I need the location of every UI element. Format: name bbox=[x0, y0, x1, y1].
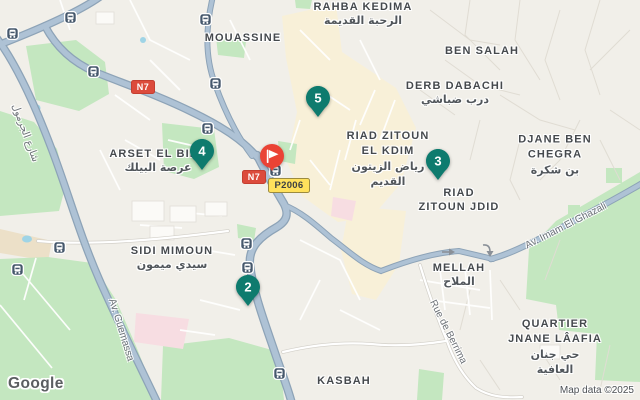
transit-station-icon[interactable] bbox=[11, 263, 24, 276]
svg-text:4: 4 bbox=[198, 144, 206, 159]
route-badge-p2006: P2006 bbox=[268, 178, 310, 193]
area-label-kasbah[interactable]: KASBAH bbox=[317, 374, 371, 388]
transit-station-icon[interactable] bbox=[201, 122, 214, 135]
area-label-derb-dabachi[interactable]: DERB DABACHI درب ضباشي bbox=[406, 79, 504, 107]
route-badge-n7: N7 bbox=[131, 80, 155, 94]
transit-station-icon[interactable] bbox=[199, 13, 212, 26]
transit-station-icon[interactable] bbox=[87, 65, 100, 78]
transit-station-icon[interactable] bbox=[273, 367, 286, 380]
transit-station-icon[interactable] bbox=[209, 77, 222, 90]
area-label-djane-ben-chegra[interactable]: DJANE BEN CHEGRA بن شكرة bbox=[518, 133, 591, 178]
map-marker-4[interactable]: 4 bbox=[190, 139, 214, 170]
map-marker-5[interactable]: 5 bbox=[306, 86, 330, 117]
map-marker-3[interactable]: 3 bbox=[426, 149, 450, 180]
destination-flag-icon[interactable] bbox=[258, 143, 286, 178]
area-label-mouassine[interactable]: MOUASSINE bbox=[205, 31, 282, 45]
transit-station-icon[interactable] bbox=[6, 27, 19, 40]
svg-text:2: 2 bbox=[244, 280, 251, 295]
transit-station-icon[interactable] bbox=[240, 237, 253, 250]
svg-text:5: 5 bbox=[314, 91, 321, 106]
map-attribution: Map data ©2025 bbox=[560, 385, 634, 396]
transit-station-icon[interactable] bbox=[53, 241, 66, 254]
area-label-rahba-kedima[interactable]: RAHBA KEDIMA الرحبة القديمة bbox=[314, 0, 413, 28]
area-label-ben-salah[interactable]: BEN SALAH bbox=[445, 44, 519, 58]
svg-text:3: 3 bbox=[434, 154, 441, 169]
area-label-riad-zitoun-el-kdim[interactable]: RIAD ZITOUN EL KDIM رياض الزيتون القديم bbox=[347, 129, 430, 189]
area-label-sidi-mimoun[interactable]: SIDI MIMOUN سيدي ميمون bbox=[131, 244, 213, 272]
area-label-mellah[interactable]: MELLAH الملاح bbox=[433, 261, 485, 289]
transit-station-icon[interactable] bbox=[241, 261, 254, 274]
transit-station-icon[interactable] bbox=[64, 11, 77, 24]
area-label-riad-zitoun-jdid[interactable]: RIAD ZITOUN JDID bbox=[419, 186, 500, 214]
map-marker-2[interactable]: 2 bbox=[236, 275, 260, 306]
map-viewport[interactable]: Av. Guemassa شارع الجرمول Av. Imam El Gh… bbox=[0, 0, 640, 400]
area-label-quartier-jnane-laafia[interactable]: QUARTIER JNANE LÂAFIA حي جنان العافية bbox=[508, 317, 602, 377]
google-logo[interactable]: Google bbox=[8, 375, 64, 393]
